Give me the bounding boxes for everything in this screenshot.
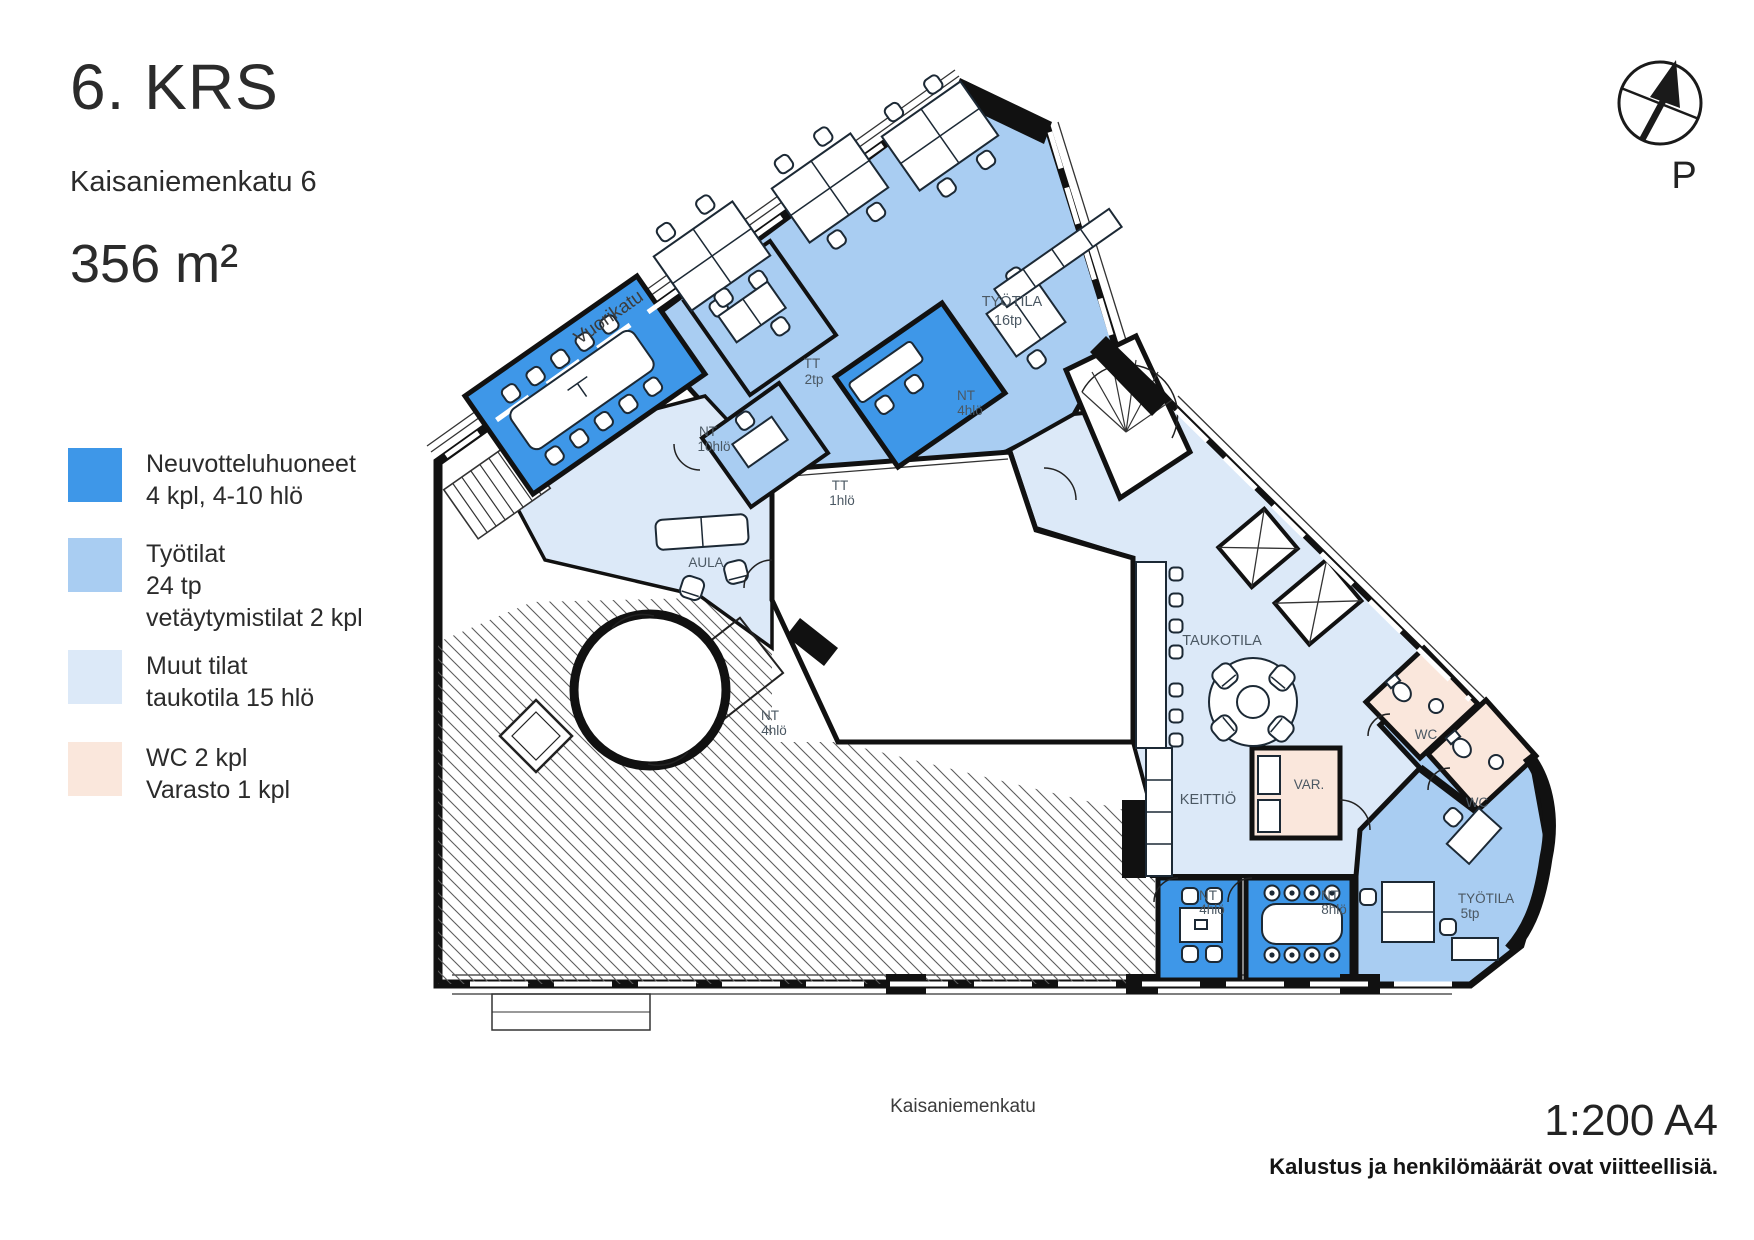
label-tt1: TT	[832, 478, 849, 493]
legend-item-other: Muut tilat taukotila 15 hlö	[68, 650, 314, 714]
legend-swatch-work	[68, 538, 122, 592]
north-compass-icon: P	[1619, 60, 1701, 197]
legend-swatch-other	[68, 650, 122, 704]
floorplan-page: TYÖTILA 16tp TT 2tp NT 4hlö NT 10hlö TT …	[0, 0, 1754, 1240]
tower-room	[574, 614, 726, 766]
address: Kaisaniemenkatu 6	[70, 166, 317, 199]
label-nt4-top: NT	[957, 388, 975, 403]
label-nt10: NT	[699, 424, 717, 439]
footer: 1:200 A4 Kalustus ja henkilömäärät ovat …	[1269, 1096, 1718, 1180]
label-nt8-bottom: NT	[1321, 888, 1339, 903]
street-kaisaniemenkatu: Kaisaniemenkatu	[890, 1096, 1036, 1117]
label-taukotila: TAUKOTILA	[1182, 633, 1262, 649]
legend-item-work: Työtilat 24 tp vetäytymistilat 2 kpl	[68, 538, 363, 634]
floor-title: 6. KRS	[70, 50, 317, 124]
title-block: 6. KRS Kaisaniemenkatu 6 356 m²	[70, 50, 317, 295]
svg-text:4hlö: 4hlö	[1199, 902, 1225, 917]
label-tt2: TT	[804, 356, 821, 371]
svg-text:4hlö: 4hlö	[957, 403, 983, 418]
svg-text:10hlö: 10hlö	[697, 439, 730, 454]
legend-swatch-meeting	[68, 448, 122, 502]
legend-swatch-wc	[68, 742, 122, 796]
label-aula: AULA	[688, 555, 723, 570]
svg-text:5tp: 5tp	[1461, 906, 1480, 921]
svg-text:4hlö: 4hlö	[761, 723, 787, 738]
disclaimer-text: Kalustus ja henkilömäärät ovat viitteell…	[1269, 1154, 1718, 1180]
legend-item-meeting: Neuvotteluhuoneet 4 kpl, 4-10 hlö	[68, 448, 356, 512]
svg-text:16tp: 16tp	[994, 313, 1022, 329]
label-nt4-hatch: NT	[761, 708, 779, 723]
legend-item-wc: WC 2 kpl Varasto 1 kpl	[68, 742, 290, 806]
label-keittio: KEITTIÖ	[1180, 790, 1236, 808]
label-wc2: WC	[1466, 795, 1489, 810]
label-varasto: VAR.	[1294, 777, 1325, 792]
svg-text:2tp: 2tp	[805, 372, 824, 387]
label-wc1: WC	[1415, 727, 1438, 742]
compass-label: P	[1671, 155, 1696, 197]
label-nt4-bottom: NT	[1199, 888, 1217, 903]
svg-text:1hlö: 1hlö	[829, 493, 855, 508]
scale-text: 1:200 A4	[1269, 1096, 1718, 1146]
label-tyotila16: TYÖTILA	[982, 292, 1043, 310]
label-tyotila5: TYÖTILA	[1458, 891, 1514, 906]
svg-text:8hlö: 8hlö	[1321, 902, 1347, 917]
area-value: 356 m²	[70, 233, 317, 295]
